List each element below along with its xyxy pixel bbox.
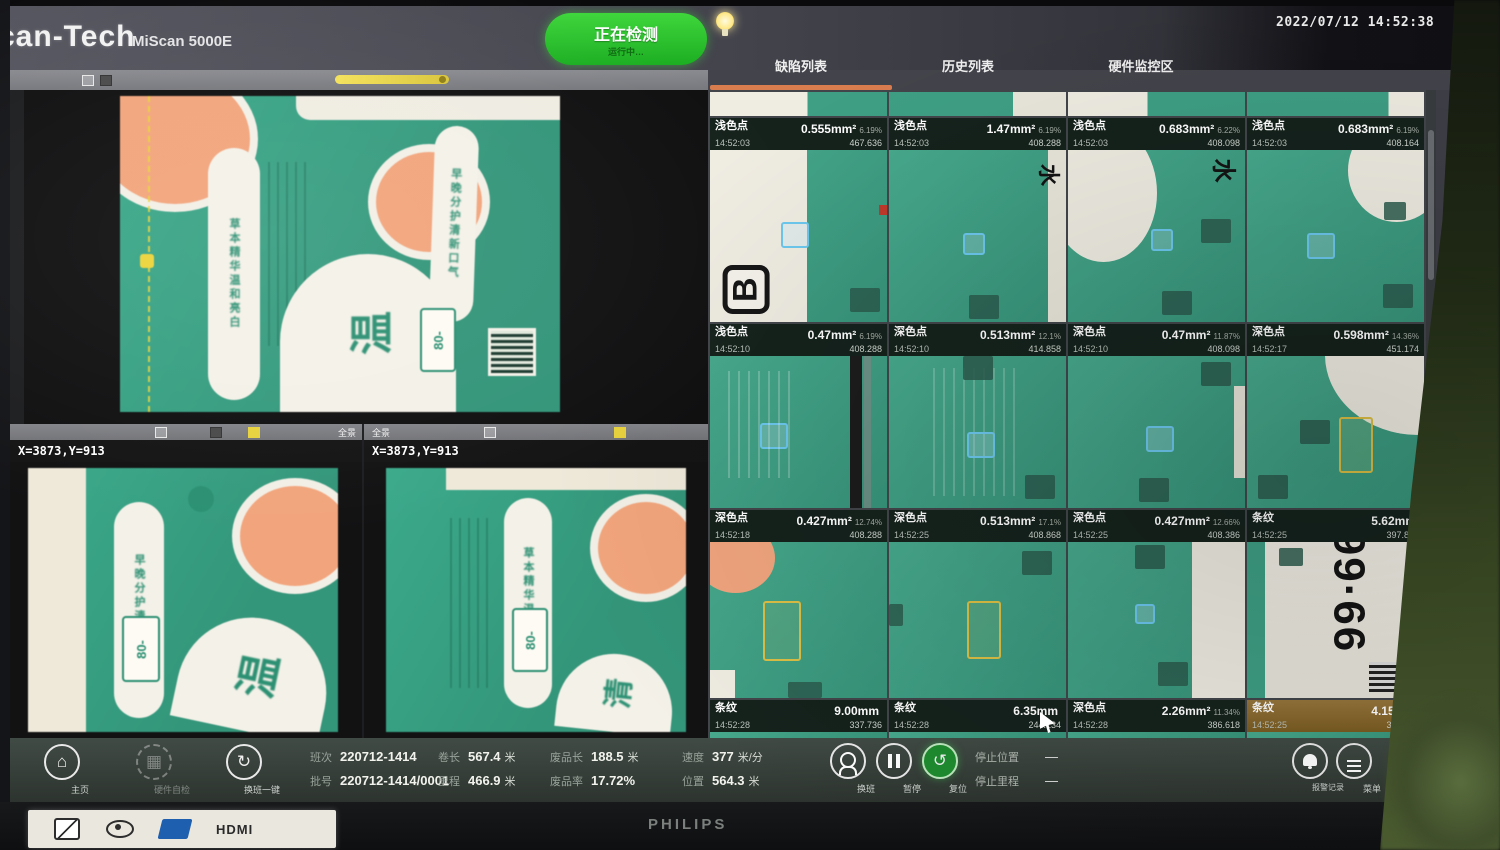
package-print-glyph: B [723,265,770,314]
defect-type: 浅色点 [894,120,929,132]
defect-percent: 12.66% [1213,518,1240,527]
stat-label: 废品率 [550,776,583,788]
guide-line-marker[interactable] [140,254,154,268]
stat-waste-length: 废品长188.5米 [550,745,639,769]
stat-label: 批号 [310,776,332,788]
defect-position-number: 337.736 [849,720,882,730]
defect-percent: 12.1% [1038,332,1061,341]
stat-label: 里程 [438,776,460,788]
scrollbar-thumb[interactable] [1428,130,1434,280]
defect-tile[interactable]: 深色点 14:52:17 0.598mm²14.36% 451.174 [1247,324,1424,508]
tab-hardware-monitor[interactable]: 硬件监控区 [1066,52,1216,90]
defect-position-number: 408.164 [1386,138,1419,148]
reset-button[interactable]: ↺ [922,743,958,779]
defect-image-shape [850,356,862,508]
defect-image: B [710,150,887,322]
highlight-icon[interactable] [614,427,626,438]
defect-image-shape [1247,542,1265,698]
defect-time: 14:52:03 [715,138,750,148]
defect-time: 14:52:10 [1073,344,1108,354]
defect-tile[interactable]: 浅色点 14:52:03 1.47mm²6.19% 408.288 水 [889,118,1066,322]
stat-batch: 批号220712-1414/0001 [310,769,453,793]
defect-tile[interactable]: 浅色点 14:52:03 0.683mm²6.19% 408.164 [1247,118,1424,322]
run-status-button[interactable]: 正在检测 运行中… [545,13,707,65]
stat-mileage: 里程466.9米 [438,769,516,793]
defect-type: 浅色点 [1073,120,1108,132]
defect-time: 14:52:03 [894,138,929,148]
defect-tile[interactable]: 深色点 14:52:25 0.513mm²17.1% 408.868 [889,510,1066,698]
package-print-glyph: 水 [1034,164,1066,186]
application-screen: can-Tech MiScan 5000E 正在检测 运行中… 2022/07/… [10,6,1472,802]
undo-icon: ↺ [933,751,947,770]
defect-time: 14:52:17 [1252,344,1287,354]
defect-roi-marker [967,601,1001,659]
defect-size: 6.35mm [1013,704,1058,718]
pan-icon[interactable] [484,427,496,438]
defect-tile-header: 深色点 14:52:10 0.513mm²12.1% 414.858 [889,324,1066,356]
system-timestamp: 2022/07/12 14:52:38 [1276,15,1468,30]
brightness-slider[interactable] [335,75,449,84]
defect-size: 9.00mm [834,704,879,718]
person-icon [840,752,856,768]
registration-mark [850,288,880,312]
defect-roi-marker [781,222,809,248]
package-fan-shape: 温 [170,604,338,732]
defect-time: 14:52:28 [715,720,750,730]
stat-unit: 米 [749,776,760,788]
defect-size: 0.47mm² [1162,328,1211,342]
tab-label: 缺陷列表 [775,59,827,74]
pan-icon[interactable] [155,427,167,438]
registration-mark [1139,478,1169,502]
registration-mark [1279,548,1303,566]
panorama-button[interactable]: 全景 [338,426,356,439]
defect-tile-header: 条纹 14:52:28 6.35mm 244.134 [889,700,1066,732]
stat-position: 位置564.3米 [682,769,763,793]
defect-time: 14:52:25 [894,530,929,540]
hardware-selfcheck-button[interactable]: ▦ [136,744,172,780]
stat-value: 220712-1414 [340,749,417,764]
defect-time: 14:52:03 [1073,138,1108,148]
defect-type: 深色点 [894,512,929,524]
home-button[interactable]: ⌂ [44,744,80,780]
nav-button-label: 主页 [45,783,115,796]
defect-tile-header: 条纹 14:52:28 9.00mm 337.736 [710,700,887,732]
sub-camera-toolbar: 全景 [10,424,362,440]
package-print-glyph: 水 [1208,159,1243,183]
package-orange-blob [232,478,338,594]
defect-tile-header: 浅色点 14:52:03 0.683mm²6.22% 408.098 [1068,118,1245,150]
package-edge [28,468,86,732]
defect-position-number: 408.288 [849,530,882,540]
stop-label: 停止位置 [975,752,1019,764]
defect-percent: 12.74% [855,518,882,527]
defect-tile-header: 浅色点 14:52:03 1.47mm²6.19% 408.288 [889,118,1066,150]
refresh-icon: ↻ [237,752,251,771]
defect-percent: 6.19% [859,126,882,135]
stat-roll-length: 卷长567.4米 [438,745,516,769]
defect-type: 深色点 [894,326,929,338]
defect-type: 条纹 [894,702,929,714]
background-foliage [1368,680,1500,850]
defect-time: 14:52:25 [1252,720,1287,730]
defect-tile-header: 深色点 14:52:10 0.47mm²11.87% 408.098 [1068,324,1245,356]
stat-value: 188.5 [591,749,624,764]
menu-icon [1347,760,1361,762]
defect-image-shape [1068,150,1157,262]
defect-tile-partial[interactable] [889,92,1066,116]
stop-value: — [1045,749,1058,764]
defect-tile-header: 条纹 14:52:25 5.62mm 397.859 [1247,510,1424,542]
tab-history-list[interactable]: 历史列表 [908,52,1028,90]
defect-time: 14:52:25 [1073,530,1108,540]
defect-position-number: 408.098 [1207,138,1240,148]
app-logo: can-Tech [10,20,135,54]
sub-camera-view-2[interactable]: 草本精华温和亮白 80- 清 [364,462,708,738]
defect-position-number: 408.288 [849,344,882,354]
defect-time: 14:52:28 [1073,720,1108,730]
stop-label: 停止里程 [975,776,1019,788]
stat-label: 班次 [310,752,332,764]
pause-icon [888,754,900,768]
defect-image-shape [1234,386,1245,477]
defect-tile-header: 浅色点 14:52:10 0.47mm²6.19% 408.288 [710,324,887,356]
registration-mark [1258,475,1288,499]
defect-type: 条纹 [1252,702,1287,714]
defect-image [1247,150,1424,322]
defect-tile-partial[interactable] [1068,92,1245,116]
monitor-left-bezel [0,0,10,850]
defect-percent: 11.34% [1213,708,1240,717]
stat-shift: 班次220712-1414 [310,745,453,769]
nav-button-label: 硬件自检 [137,783,207,796]
tab-label: 硬件监控区 [1108,59,1173,74]
registration-mark [1201,362,1231,386]
defect-tile-header: 深色点 14:52:25 0.513mm²17.1% 408.868 [889,510,1066,542]
defect-percent: 17.1% [1038,518,1061,527]
registration-mark [788,682,822,698]
defect-type: 条纹 [1252,512,1287,524]
package-80-badge: 80- [420,308,456,372]
defect-position-number: 414.858 [1028,344,1061,354]
defect-position-number: 467.636 [849,138,882,148]
defect-percent: 6.19% [1396,126,1419,135]
package-label-pill: 草本精华温和亮白 [208,148,260,400]
package-label-text: 早晚分护清新口气 [444,168,464,280]
defect-position-number: 408.868 [1028,530,1061,540]
registration-mark [1384,202,1406,220]
package-80-text: 80- [430,331,445,350]
stop-value: — [1045,773,1058,788]
main-camera-view[interactable]: 草本精华温和亮白 早晚分护清新口气 温 80- [24,90,708,424]
package-big-character: 清 [593,676,640,710]
defect-position-number: 451.174 [1386,344,1419,354]
defect-tile-header: 深色点 14:52:17 0.598mm²14.36% 451.174 [1247,324,1424,356]
defect-image [710,356,887,508]
defect-type: 浅色点 [715,326,750,338]
package-fan-shape: 清 [554,648,678,732]
defect-type: 深色点 [715,512,750,524]
stat-label: 位置 [682,776,704,788]
defect-time: 14:52:03 [1252,138,1287,148]
defect-image [889,542,1066,698]
package-80-text: 80- [522,631,537,650]
defect-tile[interactable]: 深色点 14:52:10 0.47mm²11.87% 408.098 [1068,324,1245,508]
package-dot [188,486,214,512]
grid-view-icon[interactable] [82,75,94,86]
defect-tile-header: 深色点 14:52:25 0.427mm²12.66% 408.386 [1068,510,1245,542]
defect-tile[interactable]: 深色点 14:52:18 0.427mm²12.74% 408.288 [710,510,887,698]
defect-type: 条纹 [715,702,750,714]
package-qr-code [488,328,536,376]
registration-mark [1300,420,1330,444]
slider-knob[interactable] [439,76,446,83]
certification-logo-icon [54,818,80,840]
package-label-pill: 早晚分护清新口气 [114,502,164,718]
defect-tile-header: 浅色点 14:52:03 0.555mm²6.19% 467.636 [710,118,887,150]
defect-roi-marker [763,601,801,661]
defect-size: 0.427mm² [1154,514,1209,528]
package-label-text: 草本精华温和亮白 [226,218,242,330]
defect-size: 0.555mm² [801,122,856,136]
highlight-icon[interactable] [248,427,260,438]
run-status-sub-label: 运行中… [608,45,644,58]
defect-type: 深色点 [1073,512,1108,524]
package-image: 早晚分护清新口气 80- 温 [28,468,338,732]
run-status-label: 正在检测 [594,21,658,45]
registration-mark [1135,545,1165,569]
defect-tile[interactable]: 条纹 14:52:28 9.00mm 337.736 [710,700,887,738]
monitor-brand-logo: PHILIPS [648,816,727,833]
defect-tile-header: 浅色点 14:52:03 0.683mm²6.19% 408.164 [1247,118,1424,150]
defect-size: 0.427mm² [796,514,851,528]
monitor-top-bezel [0,0,1500,6]
defect-roi-marker [1151,229,1173,251]
measure-icon[interactable] [210,427,222,438]
defect-size: 1.47mm² [987,122,1036,136]
shift-button[interactable] [830,743,866,779]
monitor-photo: can-Tech MiScan 5000E 正在检测 运行中… 2022/07/… [0,0,1500,850]
defect-size: 0.683mm² [1159,122,1214,136]
stat-unit: 米/分 [738,752,763,764]
defect-image-shape [864,356,871,508]
defect-position-number: 386.618 [1207,720,1240,730]
nav-button-label: 换班一键 [227,783,297,796]
eye-logo-icon [106,820,134,838]
crop-view-icon[interactable] [100,75,112,86]
registration-mark [1022,551,1052,575]
defect-position-number: 408.098 [1207,344,1240,354]
defect-tile[interactable]: 浅色点 14:52:03 0.555mm²6.19% 467.636 B [710,118,887,322]
package-image: 草本精华温和亮白 早晚分护清新口气 温 80- [120,96,560,412]
stat-label: 速度 [682,752,704,764]
defect-time: 14:52:25 [1252,530,1287,540]
selfcheck-icon: ▦ [146,752,162,771]
registration-mark [969,295,999,319]
defect-roi-marker [1146,426,1174,452]
defect-grid: 浅色点 14:52:03 0.555mm²6.19% 467.636 B 浅色点… [708,90,1426,738]
defect-tile-header: 深色点 14:52:18 0.427mm²12.74% 408.288 [710,510,887,542]
stat-unit: 米 [628,752,639,764]
stop-mileage-readout: 停止里程— [975,769,1058,793]
stat-label: 废品长 [550,752,583,764]
registration-mark [728,371,799,477]
defect-roi-marker [1135,604,1155,624]
defect-percent: 11.87% [1213,332,1240,341]
defect-tile[interactable]: 深色点 14:52:10 0.513mm²12.1% 414.858 [889,324,1066,508]
camera-coords-readout: X=3873,Y=913 [10,440,362,462]
panorama-button[interactable]: 全景 [372,426,390,439]
stat-value: 377 [712,749,734,764]
package-big-character: 温 [219,647,291,703]
defect-time: 14:52:28 [894,720,929,730]
camera-toolbar [10,70,708,90]
stat-value: 466.9 [468,773,501,788]
blue-logo-icon [158,819,193,839]
defect-tile-partial[interactable] [710,92,887,116]
registration-mark [963,356,993,380]
tab-label: 历史列表 [942,59,994,74]
package-80-badge: 80- [122,616,160,682]
defect-percent: 6.19% [859,332,882,341]
package-orange-blob [590,494,686,602]
defect-tile[interactable]: 深色点 14:52:25 0.427mm²12.66% 408.386 [1068,510,1245,698]
defect-type: 深色点 [1073,702,1108,714]
alarm-log-button[interactable] [1292,743,1328,779]
defect-size: 0.598mm² [1333,328,1388,342]
registration-mark [1162,291,1192,315]
defect-percent: 14.36% [1392,332,1419,341]
defect-tile[interactable]: 深色点 14:52:28 2.26mm²11.34% 386.618 [1068,700,1245,738]
defect-roi-marker [967,432,995,458]
stat-value: 220712-1414/0001 [340,773,449,788]
tab-defect-list[interactable]: 缺陷列表 [722,52,880,90]
home-icon: ⌂ [57,752,67,771]
bell-icon [1303,754,1317,766]
defect-type: 浅色点 [1252,120,1287,132]
hdmi-label: HDMI [216,822,253,837]
package-print-glyph: 99·66 [1324,542,1374,653]
defect-size: 0.513mm² [980,328,1035,342]
defect-type: 浅色点 [715,120,750,132]
registration-mark [1158,662,1188,686]
defect-roi-marker [1339,417,1373,473]
defect-size: 0.513mm² [980,514,1035,528]
stat-unit: 米 [505,752,516,764]
defect-type: 深色点 [1073,326,1108,338]
defect-roi-marker [1307,233,1335,259]
defect-image [1247,356,1424,508]
stat-label: 卷长 [438,752,460,764]
defect-tile[interactable]: 条纹 14:52:28 6.35mm 244.134 [889,700,1066,738]
package-80-text: 80- [133,640,148,659]
defect-time: 14:52:18 [715,530,750,540]
defect-image [710,542,887,698]
defect-list-panel: 浅色点 14:52:03 0.555mm²6.19% 467.636 B 浅色点… [708,90,1436,738]
package-text-lines [450,518,490,688]
defect-image-shape [710,542,775,593]
defect-tile[interactable]: 浅色点 14:52:10 0.47mm²6.19% 408.288 [710,324,887,508]
defect-tile-partial[interactable] [1247,92,1424,116]
shift-change-button[interactable]: ↻ [226,744,262,780]
registration-mark [889,604,903,626]
defect-percent: 6.19% [1038,126,1061,135]
menu-button[interactable] [1336,743,1372,779]
defect-time: 14:52:10 [715,344,750,354]
defect-position-number: 408.386 [1207,530,1240,540]
defect-image: 水 [889,150,1066,322]
stat-speed: 速度377米/分 [682,745,763,769]
package-big-character: 温 [336,311,400,355]
bottom-toolbar: ⌂ 主页 ▦ 硬件自检 ↻ 换班一键 班次220712-1414 批号22071… [10,738,1472,802]
package-image: 草本精华温和亮白 80- 清 [386,468,686,732]
sub-camera-view-1[interactable]: 早晚分护清新口气 80- 温 [10,462,362,738]
defect-size: 0.47mm² [808,328,857,342]
defect-tile[interactable]: 浅色点 14:52:03 0.683mm²6.22% 408.098 水 [1068,118,1245,322]
stat-waste-rate: 废品率17.72% [550,769,639,793]
stat-value: 567.4 [468,749,501,764]
stat-value: 564.3 [712,773,745,788]
registration-mark [1025,475,1055,499]
registration-mark [1201,219,1231,243]
sub-camera-toolbar: 全景 [364,424,708,440]
pause-button[interactable] [876,743,912,779]
stat-unit: 米 [505,776,516,788]
defect-image [1068,356,1245,508]
registration-mark [1383,284,1413,308]
defect-image-shape [879,205,887,215]
bezel-sticker: HDMI [28,810,336,848]
defect-image [1068,542,1245,698]
defect-image-shape [1192,542,1245,698]
package-edge [296,96,560,120]
stop-position-readout: 停止位置— [975,745,1058,769]
defect-roi-marker [963,233,985,255]
defect-position-number: 408.288 [1028,138,1061,148]
defect-image [889,356,1066,508]
camera-coords-readout: X=3873,Y=913 [364,440,708,462]
camera-panel: 草本精华温和亮白 早晚分护清新口气 温 80- 全景 全景 [10,90,708,738]
lightbulb-icon [716,12,734,30]
defect-type: 深色点 [1252,326,1287,338]
defect-size: 0.683mm² [1338,122,1393,136]
package-label-pill: 草本精华温和亮白 [504,498,552,708]
defect-tile-header: 深色点 14:52:28 2.26mm²11.34% 386.618 [1068,700,1245,732]
defect-size: 2.26mm² [1162,704,1211,718]
app-model-name: MiScan 5000E [132,33,232,50]
defect-image-shape [710,670,735,698]
defect-image: 水 [1068,150,1245,322]
defect-percent: 6.22% [1217,126,1240,135]
defect-time: 14:52:10 [894,344,929,354]
package-80-badge: 80- [512,608,548,672]
package-edge [446,468,686,490]
stat-value: 17.72% [591,773,635,788]
